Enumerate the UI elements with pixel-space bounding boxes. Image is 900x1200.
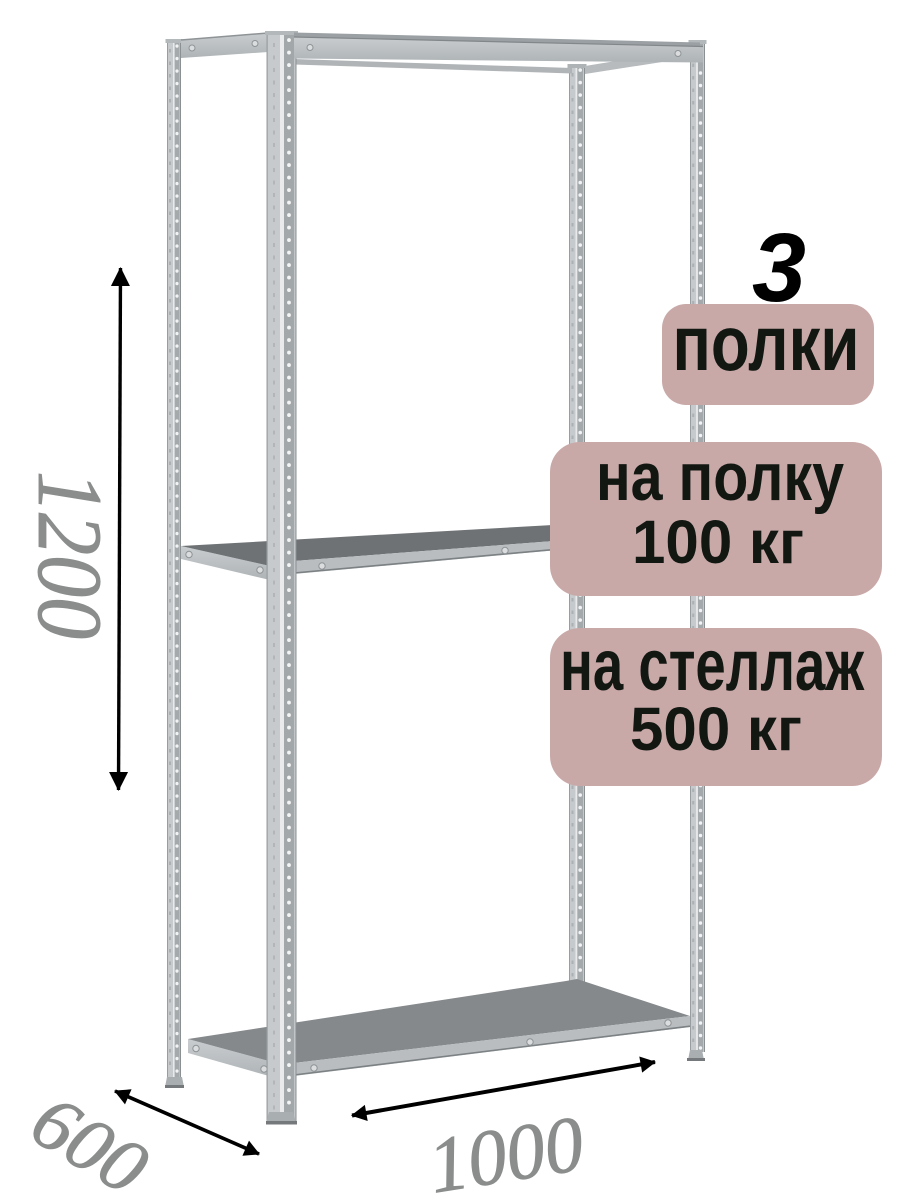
svg-text:100 кг: 100 кг (632, 508, 804, 576)
svg-text:1200: 1200 (19, 471, 121, 639)
svg-text:500 кг: 500 кг (630, 695, 802, 763)
svg-text:на полку: на полку (596, 439, 844, 515)
svg-text:на стеллаж: на стеллаж (560, 626, 865, 706)
svg-text:полки: полки (673, 299, 860, 387)
